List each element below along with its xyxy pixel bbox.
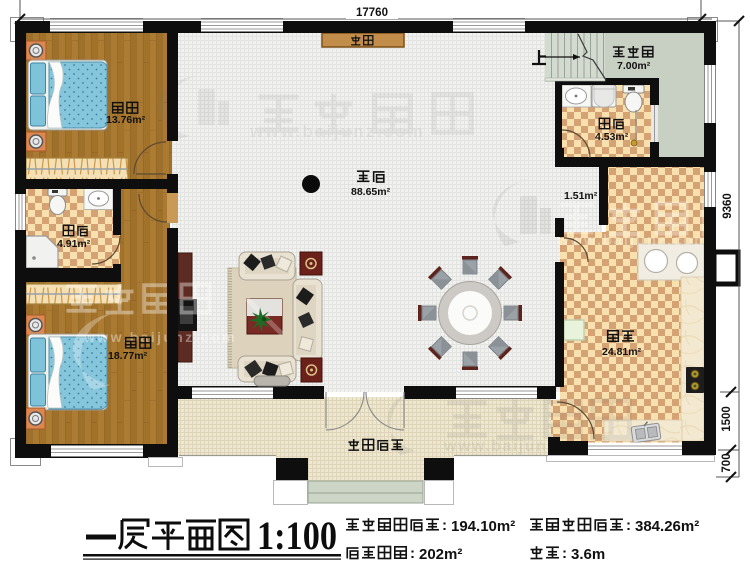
svg-text:www.baijunz.com: www.baijunz.com [83, 329, 237, 345]
svg-text:1500: 1500 [721, 406, 733, 432]
svg-text:24.81m²: 24.81m² [602, 346, 642, 358]
svg-text:3.6m: 3.6m [571, 546, 605, 563]
svg-text:13.76m²: 13.76m² [106, 114, 146, 126]
svg-text::: : [626, 517, 631, 534]
svg-text:www.baijunz.com: www.baijunz.com [556, 232, 709, 249]
svg-text:17760: 17760 [356, 7, 388, 19]
svg-text:88.65m²: 88.65m² [351, 186, 391, 198]
svg-text:384.26m²: 384.26m² [635, 518, 699, 535]
svg-text:9360: 9360 [722, 193, 734, 219]
svg-text::: : [410, 545, 415, 562]
svg-text:194.10m²: 194.10m² [451, 518, 515, 535]
svg-text:1:100: 1:100 [257, 513, 337, 558]
svg-text:4.53m²: 4.53m² [595, 131, 629, 143]
svg-text::: : [442, 517, 447, 534]
svg-text:18.77m²: 18.77m² [108, 350, 148, 362]
svg-text:www.baijunz.com: www.baijunz.com [249, 122, 425, 141]
svg-text:700: 700 [721, 453, 733, 472]
svg-text:202m²: 202m² [419, 546, 462, 563]
svg-text::: : [562, 545, 567, 562]
svg-text:4.91m²: 4.91m² [57, 238, 91, 250]
svg-text:7.00m²: 7.00m² [617, 60, 651, 72]
svg-text:1.51m²: 1.51m² [564, 190, 598, 202]
